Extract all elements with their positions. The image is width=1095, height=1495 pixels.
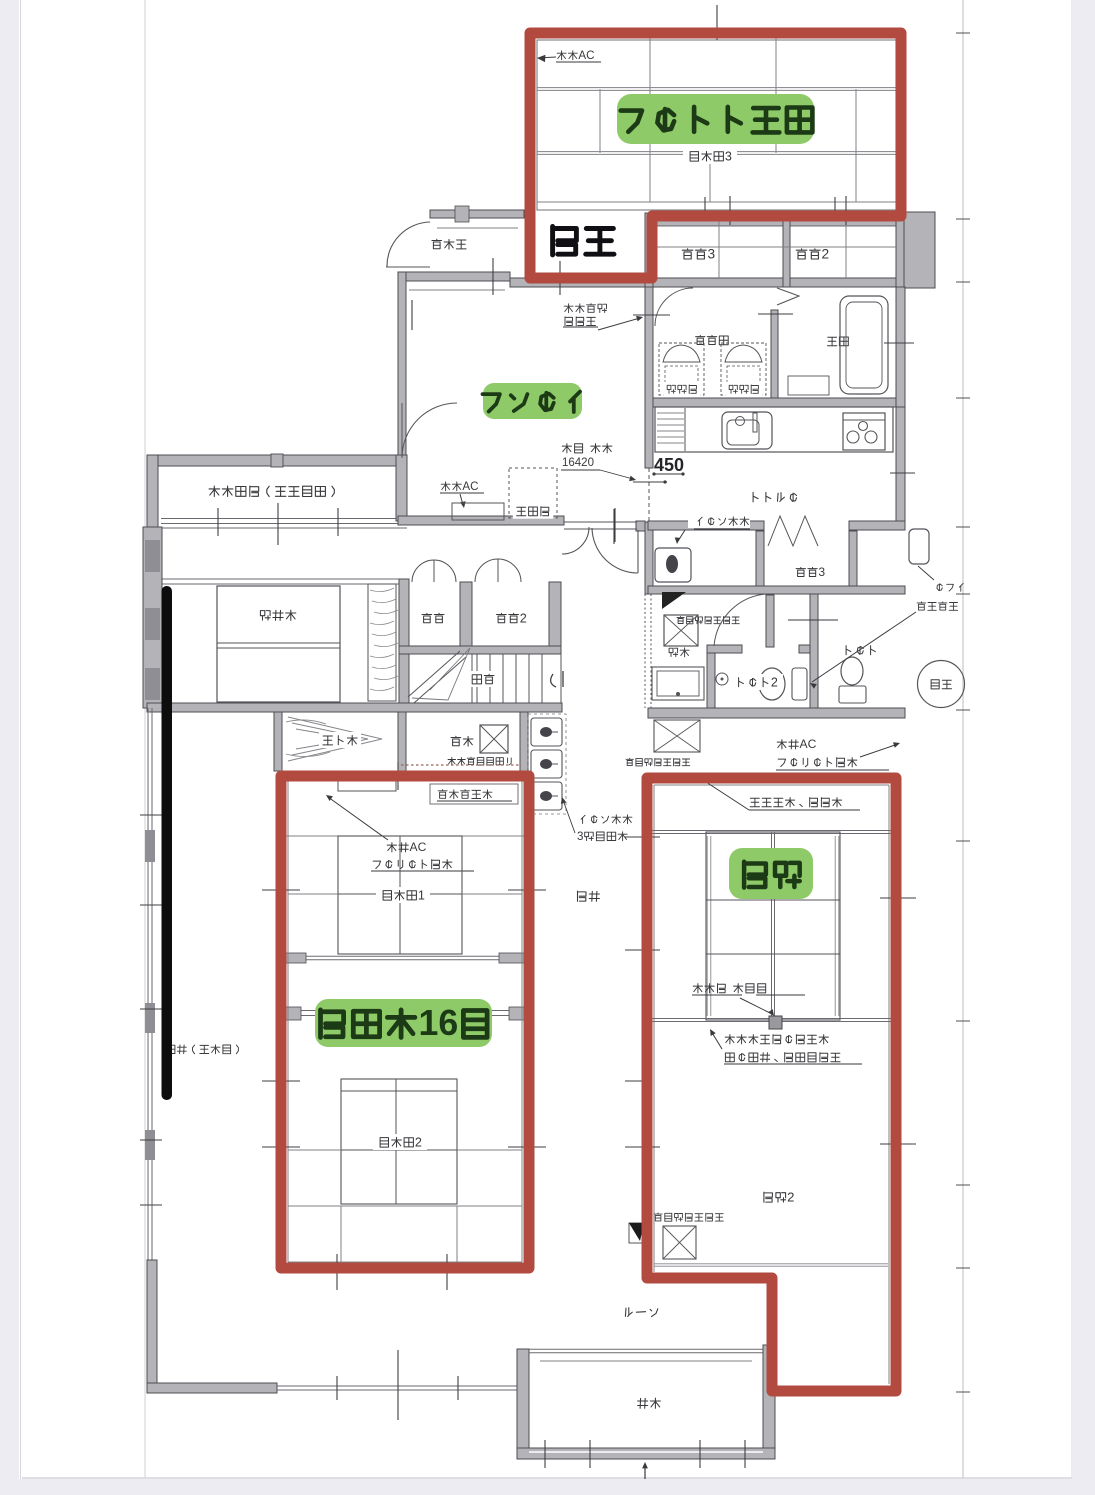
svg-text:2: 2 — [787, 1190, 794, 1205]
svg-text:AC: AC — [800, 737, 817, 751]
svg-text:2: 2 — [415, 1135, 422, 1149]
svg-text:3: 3 — [708, 247, 716, 262]
svg-text:AC: AC — [578, 49, 594, 62]
svg-text:2: 2 — [822, 247, 830, 262]
svg-text:2: 2 — [771, 675, 778, 689]
svg-text:3: 3 — [725, 149, 732, 163]
svg-text:3: 3 — [577, 830, 583, 843]
svg-text:AC: AC — [410, 840, 427, 854]
svg-text:2: 2 — [520, 611, 527, 625]
svg-text:1: 1 — [418, 888, 425, 902]
svg-text:16420: 16420 — [562, 457, 594, 469]
svg-text:16: 16 — [419, 1003, 459, 1043]
svg-text:3: 3 — [818, 565, 825, 579]
svg-text:450: 450 — [654, 455, 684, 475]
svg-text:AC: AC — [462, 480, 478, 493]
